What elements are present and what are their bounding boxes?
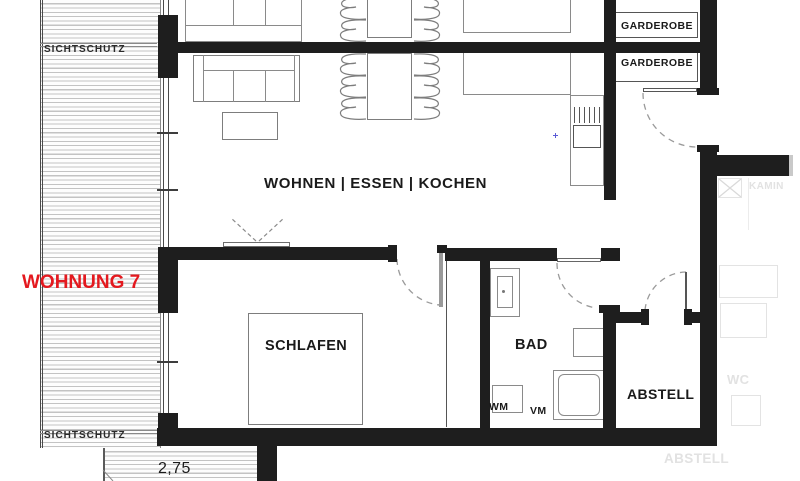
bathroom-wall-top — [445, 248, 557, 261]
apartment-label: WOHNUNG 7 — [22, 272, 140, 294]
dining-table — [367, 53, 412, 120]
neighbor-storage-label: ABSTELL — [664, 451, 729, 466]
kitchen-wall — [604, 0, 616, 200]
room-label-bedroom: SCHLAFEN — [265, 338, 347, 354]
room-label-storage: ABSTELL — [627, 386, 694, 402]
privacy-screen-label-top: SICHTSCHUTZ — [44, 44, 126, 55]
bathroom-door-arc — [557, 263, 597, 308]
right-wall-top — [700, 0, 717, 88]
wardrobe-label-bottom: GARDEROBE — [621, 57, 693, 69]
storage-door-jamb — [684, 309, 692, 325]
neighbor-wall-stub — [717, 155, 792, 176]
right-wall-main — [700, 152, 717, 446]
bedroom-door-jamb — [388, 245, 397, 262]
storage-door-jamb — [641, 309, 649, 325]
floor-plan: WOHNUNG 7 SICHTSCHUTZ SICHTSCHUTZ WOHNEN… — [0, 0, 800, 481]
bedroom-door-leaf — [439, 249, 443, 307]
room-label-living: WOHNEN | ESSEN | KOCHEN — [264, 175, 487, 192]
dining-table-neighbor-above — [367, 0, 412, 38]
bathroom-sink-basin — [497, 276, 513, 308]
room-label-bathroom: BAD — [515, 337, 548, 353]
shower-tray-inner — [558, 374, 600, 416]
bedroom-door-arc — [397, 259, 440, 305]
bottom-wall-stub — [257, 446, 277, 481]
balcony-dimension-label: 2,75 — [158, 460, 191, 478]
facade-pier — [158, 15, 178, 78]
dryer-label: VM — [530, 405, 547, 417]
party-wall-top — [160, 42, 700, 53]
kitchen-oven — [573, 125, 601, 148]
storage-door-leaf — [685, 272, 687, 312]
privacy-screen-label-bottom: SICHTSCHUTZ — [44, 430, 126, 441]
neighbor-fireplace-box — [718, 178, 742, 198]
kitchen-vent-grille — [574, 107, 601, 123]
kitchen-counter — [463, 50, 571, 95]
entry-door-arc — [643, 93, 697, 147]
bathroom-wall-top-stub — [601, 248, 620, 261]
kitchen-counter-neighbor-above — [463, 0, 571, 33]
toilet — [573, 328, 604, 357]
neighbor-fireplace-label: KAMIN — [749, 181, 784, 192]
entry-jamb — [697, 88, 719, 95]
entry-jamb — [697, 145, 719, 152]
entry-door-leaf — [643, 88, 697, 92]
bathroom-wall-right — [603, 305, 616, 428]
bed — [248, 313, 363, 425]
neighbor-fixture — [719, 265, 778, 298]
tv-projection-lines — [231, 218, 284, 241]
neighbor-fixture — [720, 303, 767, 338]
wardrobe-label-top: GARDEROBE — [621, 20, 693, 32]
bottom-wall — [157, 428, 717, 446]
bathroom-door-leaf — [557, 258, 601, 262]
sink-faucet-dot — [502, 290, 505, 293]
shaft-line — [446, 261, 447, 427]
neighbor-fixture — [731, 395, 761, 426]
dimension-leader — [103, 470, 113, 481]
neighbor-wall-stub-cap — [789, 155, 793, 176]
storage-door-arc — [645, 272, 687, 310]
neighbor-wc-label: WC — [727, 372, 749, 387]
bedroom-wall — [158, 247, 390, 260]
washing-machine-label: WM — [489, 401, 508, 413]
